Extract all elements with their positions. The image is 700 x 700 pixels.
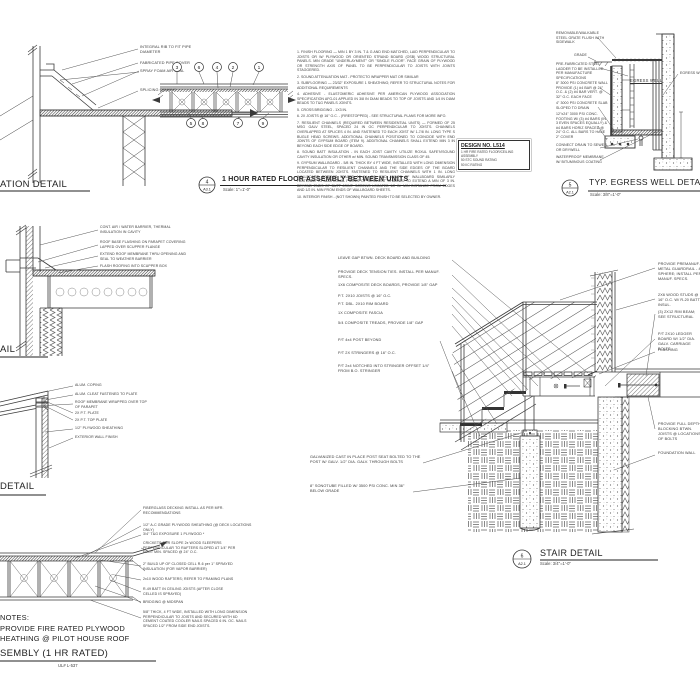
stair-label: PROVIDE DECK TENSION TIES. INSTALL PER M…	[338, 270, 448, 280]
callout-number: 8	[202, 121, 205, 127]
roof-label: 1/2" A-C GRADE PLYWOOD SHEATHING (@ DECK…	[143, 523, 263, 532]
sonotube	[520, 436, 540, 531]
note-item: 10. INTERIOR FINISH - (NOT SHOWN) PAINTE…	[297, 195, 455, 200]
stair-label-right: (3) 2X12 RIM BEAM; SEE STRUCTURAL	[658, 310, 700, 320]
egress-detail-title: TYP. EGRESS WELL DETAIL	[589, 177, 700, 187]
roof-label: 3/4" T&G EXPOSURE 1 PLYWOOD *	[143, 532, 253, 537]
stair-label: 5/4 COMPOSITE TREADS, PROVIDE 1/8" GAP	[338, 321, 433, 326]
roof-label: FIBERGLASS DECKING INSTALL AS PER MFR. R…	[143, 506, 235, 515]
foundation-wall	[592, 397, 634, 534]
egress-label: PRE-FABRICATED STEEL LADDER TO BE INSTAL…	[556, 62, 608, 80]
egress-detail-scale: Scale: 3/8"=1'-0"	[590, 192, 621, 197]
roof-label: 2" BUILD UP OF CLOSED CELL R-6 per 1" SP…	[143, 562, 238, 571]
stair-label: 8" SONOTUBE FILLED W/ 3500 PSI CONC. MIN…	[310, 484, 410, 494]
egress-window-label: EGRESS WINDOW	[680, 71, 700, 76]
stair-label: P/T 2X STRINGERS @ 16" O.C.	[338, 351, 448, 356]
callout-number: 1	[258, 65, 261, 71]
egress-label: REMOVABLE/WALKABLE STEEL GRATE FLUSH WIT…	[556, 31, 608, 45]
note-item: 4. ADHESIVE - ELASTOMERIC ADHESIVE PER A…	[297, 92, 455, 106]
callout-number: 7	[237, 121, 240, 127]
roof-assembly-title: SEMBLY (1 HR RATED)	[0, 648, 108, 659]
stair-label-right: PROVIDE PREMANUF. METAL GUARDRAIL - 4" S…	[658, 262, 700, 282]
egress-label: WATERPROOF MEMBRANE W/ BITUMINOUS COATIN…	[556, 155, 608, 164]
parapet-label: 2X P.T. PLATE	[75, 411, 145, 416]
note-item: 9. GYPSUM WALLBOARD - 5/8 IN. THICK BY 4…	[297, 161, 455, 193]
detail-number: 4	[206, 180, 209, 186]
parapet-label: EXTERIOR WALL FINISH	[75, 435, 145, 440]
roof-notes-heading: NOTES:	[0, 613, 29, 622]
note-item: 1. FINISH FLOORING — MIN 1 BY 3 IN. T & …	[297, 50, 455, 73]
roof-label: BRIDGING @ MIDSPAN	[143, 600, 238, 605]
stair-detail-title: STAIR DETAIL	[540, 548, 603, 558]
parapet-label: ROOF MEMBRANE WRAPPED OVER TOP OF PARAPE…	[75, 400, 147, 409]
design-number-title: DESIGN NO. L514	[461, 143, 527, 149]
roof-leader-lines	[75, 510, 148, 618]
design-number-box: DESIGN NO. L514 1 HR FIRE RATED FLOOR/CE…	[458, 140, 530, 170]
stair-label: LEAVE GAP BTWN. DECK BOARD AND BUILDING	[338, 256, 456, 261]
scupper-label: ROOF BASE FLASHING ON PARAPET COVERING L…	[100, 240, 198, 249]
egress-label: 8" 3000 PSI CONCRETE WALL PROVIDE (1) #4…	[556, 81, 608, 99]
callout-number: 5	[190, 121, 193, 127]
scupper-label: FLASH ROOFING INTO SCUPPER BOX	[100, 264, 195, 269]
stair-label-right: FLASHING	[658, 348, 700, 353]
egress-label: 12"x24" 3000 PSI CONC. FOOTING W/ (3) #4…	[556, 112, 608, 139]
note-item: 6. 2X JOISTS @ 16" O.C. - (FIRESTOPPED) …	[297, 114, 455, 119]
stair-label: P.T. 2X10 JOISTS @ 16" O.C.	[338, 294, 448, 299]
egress-well-label: EGRESS WELL	[630, 78, 662, 83]
parapet-label: 1/2" PLYWOOD SHEATHING	[75, 426, 145, 431]
scupper-label: EXTEND ROOF MEMBRANE THRU OPENING AND SE…	[100, 252, 195, 261]
note-item: 3. SUBFLOORING — 23/32" EXPOSURE 1 SHEAT…	[297, 81, 455, 90]
callout-number: 2	[232, 65, 235, 71]
callout-number: 9	[262, 121, 265, 127]
egress-label: GRADE	[574, 53, 604, 58]
note-item: 8. SOUND BATT INSULATION - IN EACH JOIST…	[297, 150, 455, 159]
parapet-detail-title: DETAIL	[0, 481, 34, 492]
sheet-ref: A2.1	[518, 562, 526, 566]
pipe-leader-lines	[60, 49, 139, 108]
scupper-detail-title: AIL	[0, 344, 15, 355]
rim-beam	[618, 374, 660, 396]
callout-number: 4	[216, 65, 219, 71]
pipe-label: INTEGRAL RIB TO FIT PIPE DIAMETER	[140, 45, 206, 55]
stair-label: P/T 2x4 NOTCHED INTO STRINGER OFFSET 1/4…	[338, 364, 438, 374]
drawing-sheet: INTEGRAL RIB TO FIT PIPE DIAMETER FABRIC…	[0, 0, 700, 700]
design-box-line: 50 IIC RATING	[461, 163, 527, 167]
sheet-ref: A2.1	[566, 191, 574, 195]
note-item: 7. RESILIENT CHANNELS (REQUIRED BETWEEN …	[297, 121, 455, 148]
egress-label: 4" 3000 PSI CONCRETE SLAB SLOPED TO DRAI…	[556, 101, 608, 110]
sheet-ref: A3.1	[203, 188, 211, 192]
parapet-label: 2X P.T. TOP PLATE	[75, 418, 145, 423]
roof-label: CRICKETS FOR SLOPE 2x WOOD SLEEPERS PERP…	[143, 541, 243, 555]
scupper-leader-lines	[38, 230, 98, 273]
stair-detail-scale: Scale: 3/4"=1'-0"	[540, 561, 571, 566]
stair-label: 1X COMPOSITE FASCIA	[338, 311, 448, 316]
stair-label-right: PROVIDE FULL DEPTH BLOCKING BTWN. JOISTS…	[658, 422, 700, 442]
egress-label: CONNECT DRAIN TO SEWER OR DRYWELL	[556, 143, 608, 152]
detail-number: 5	[569, 183, 572, 189]
roof-assembly-subtitle: UL# L-537	[58, 663, 78, 668]
stair-label: P.T. DBL. 2X10 RIM BOARD	[338, 302, 448, 307]
scupper-label: CONT. AIR / WATER BARRIER, THERMAL INSUL…	[100, 225, 192, 234]
floor-assembly-notes: 1. FINISH FLOORING — MIN 1 BY 3 IN. T & …	[297, 50, 455, 201]
stair-label: P/T 4x4 POST BEYOND	[338, 338, 438, 343]
roof-notes-line: PROVIDE FIRE RATED PLYWOOD	[0, 624, 125, 633]
callout-number: 6	[198, 65, 201, 71]
parapet-label: ALUM. CLEAT FASTENED TO PLATE	[75, 392, 150, 397]
roof-label: 5/8" THICK, 4 FT WIDE, INSTALLED WITH LO…	[143, 610, 248, 628]
stair-label: GALVANIZED CAST IN PLACE POST SEAT BOLTE…	[310, 455, 422, 465]
stair-label-right: FOUNDATION WALL	[658, 451, 700, 456]
pipe-detail-title: ATION DETAIL	[0, 179, 67, 190]
roof-label: 2x10 WOOD RAFTERS; REFER TO FRAMING PLAN…	[143, 577, 243, 582]
parapet-leader-lines	[30, 386, 73, 448]
floor-callouts: 3 6 4 2 1 5 8 7 9	[173, 63, 268, 128]
design-box-line: 1 HR FIRE RATED FLOOR/CEILING ASSEMBLY	[461, 150, 527, 159]
stair-label: 1X6 COMPOSITE DECK BOARDS, PROVIDE 1/8" …	[338, 283, 456, 288]
roof-notes-line: HEATHING @ PILOT HOUSE ROOF	[0, 634, 129, 643]
note-item: 5. CROSS BRIDGING - 1X3 IN.	[297, 108, 455, 113]
callout-number: 3	[176, 65, 179, 71]
parapet-label: ALUM. COPING	[75, 383, 145, 388]
deck-framing	[523, 371, 597, 436]
detail-number: 6	[521, 554, 524, 560]
roof-label: R-49 BATT IN CEILING JOISTS (AFTER CLOSE…	[143, 587, 238, 596]
stair-label-right: 2X6 WOOD STUDS @ 16" O.C. W/ R-20 BATT. …	[658, 293, 700, 308]
note-item: 2. SOUND ATTENUATION MAT - PROTECTO WRAP…	[297, 75, 455, 80]
floor-assembly-scale: Scale: 1"=1'-0"	[223, 187, 250, 192]
stair-detail-drawing: 6 A2.1	[295, 250, 700, 590]
